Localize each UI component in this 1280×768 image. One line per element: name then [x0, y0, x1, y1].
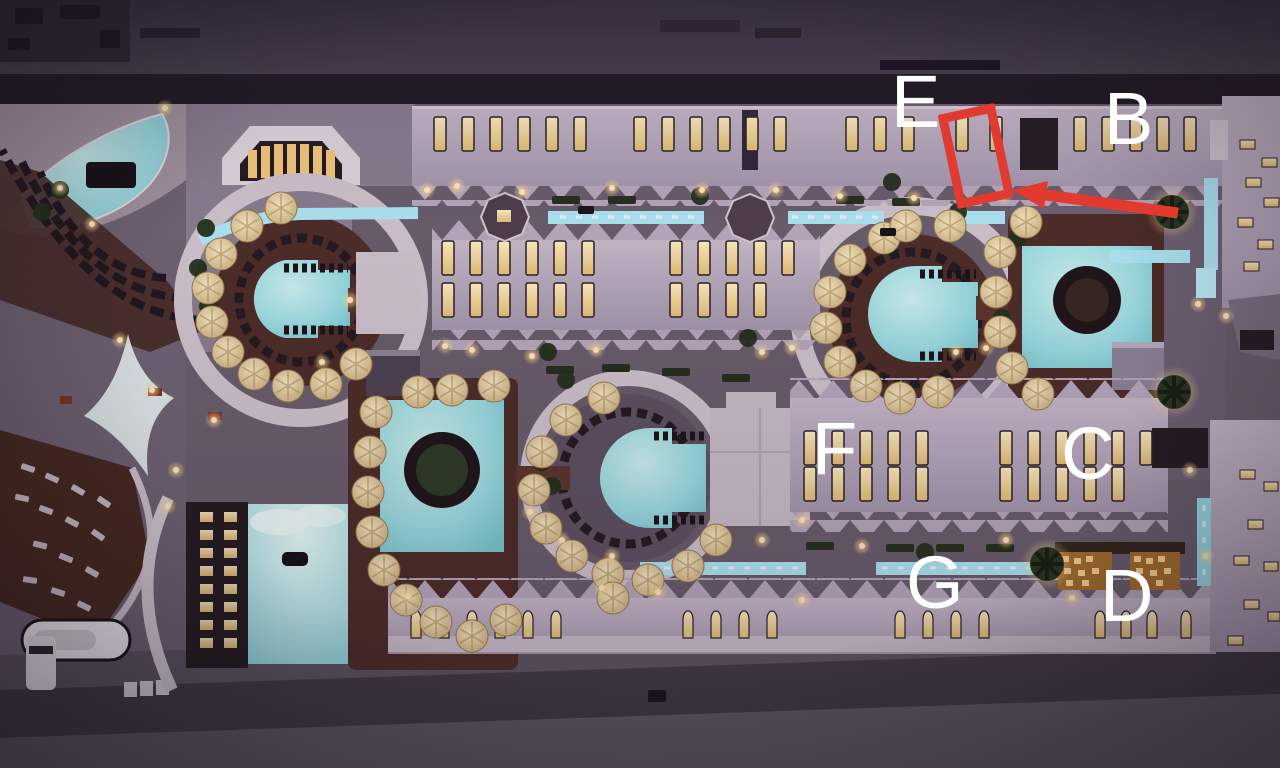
annotation-letter-d: D [1100, 559, 1153, 633]
screenshot-root: E B F C G D [0, 0, 1280, 768]
annotation-letter-b: B [1104, 82, 1153, 156]
annotation-letter-g: G [906, 546, 964, 620]
annotation-overlay: E B F C G D [0, 0, 1280, 768]
annotation-letter-c: C [1061, 417, 1114, 491]
annotation-letter-f: F [812, 412, 857, 486]
annotation-letter-e: E [891, 65, 940, 139]
annotation-rectangle-marker [938, 103, 1015, 209]
annotation-arrow [0, 0, 1280, 768]
